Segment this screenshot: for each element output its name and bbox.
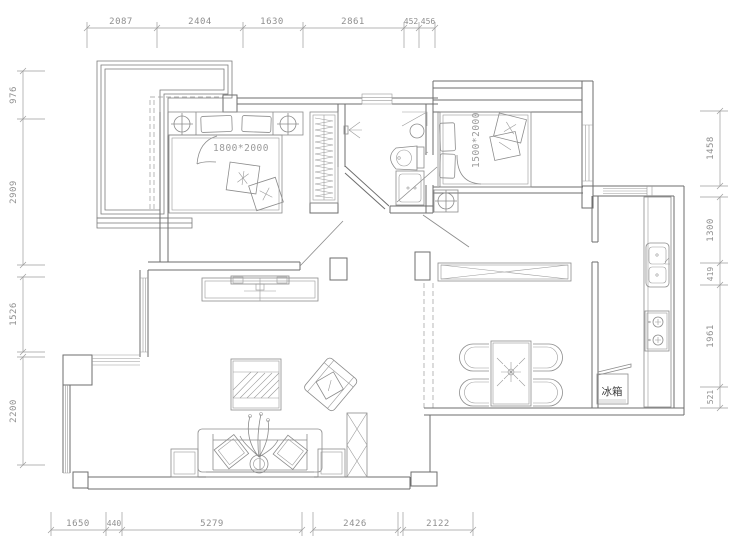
- second-bedroom-walls: [433, 81, 593, 208]
- bathroom-door-leaf: [397, 167, 437, 202]
- plant: [240, 413, 278, 474]
- headboard-band: [168, 112, 303, 135]
- tv-cabinet: [202, 278, 318, 301]
- bed-cushion: [226, 162, 260, 194]
- dimension-chain-right: 1458 1300 419 1961 521: [700, 108, 728, 411]
- dining-chair: [460, 379, 490, 406]
- dining-chair: [533, 379, 563, 406]
- dimension-chain-bottom: 1650 440 5279 2426 2122: [48, 512, 476, 536]
- living-room-walls: [63, 270, 410, 489]
- shoe-cabinet: [347, 413, 367, 477]
- dim-bottom-1: 1650: [66, 519, 90, 529]
- living-room: [171, 276, 367, 477]
- dining-room: [438, 263, 571, 406]
- dim-top-1: 2087: [109, 17, 133, 27]
- cooktop: [645, 311, 669, 351]
- master-bedroom-door-leaf: [300, 221, 343, 266]
- dining-kitchen-walls: [424, 186, 684, 415]
- dim-right-1: 1458: [706, 136, 716, 160]
- dining-chair: [460, 344, 490, 371]
- sofa: [198, 429, 322, 477]
- refrigerator: 冰箱: [597, 364, 631, 404]
- wardrobe: [310, 112, 338, 203]
- kitchen-sink: [646, 243, 670, 287]
- downlight-symbol: [277, 113, 299, 135]
- dim-left-2: 2909: [9, 180, 19, 204]
- hall-door-leaf: [423, 215, 469, 247]
- kitchen: 冰箱: [597, 197, 671, 407]
- master-bedroom-walls: [148, 94, 438, 270]
- master-bed-size-label: 1800*2000: [213, 143, 269, 154]
- dim-right-3: 419: [706, 267, 715, 282]
- table-flower: [497, 358, 525, 386]
- coffee-table: [231, 359, 281, 410]
- pillow: [440, 154, 456, 179]
- dim-bottom-5: 2122: [426, 519, 450, 529]
- dim-bottom-4: 2426: [343, 519, 367, 529]
- bathroom-sink: [396, 171, 424, 205]
- hall-walls: [330, 190, 458, 280]
- dim-top-4: 2861: [341, 17, 365, 27]
- armchair: [303, 356, 358, 412]
- bathroom-walls: [345, 104, 469, 247]
- dim-left-4: 2200: [9, 399, 19, 423]
- dim-bottom-3: 5279: [200, 519, 224, 529]
- master-bedroom: 1800*2000: [168, 112, 338, 213]
- kitchen-counter: [644, 197, 671, 407]
- dimension-chain-left: 976 2909 1526 2200: [9, 68, 45, 468]
- dim-left-1: 976: [9, 86, 19, 104]
- sideboard: [438, 263, 571, 281]
- dining-chair: [533, 344, 563, 371]
- pillow: [201, 115, 233, 132]
- wall-lamp-icon: [344, 122, 362, 138]
- second-bedroom-window: [582, 125, 593, 181]
- dim-top-2: 2404: [188, 17, 212, 27]
- dim-left-3: 1526: [9, 302, 19, 326]
- toilet: [391, 146, 429, 170]
- dim-bottom-2: 440: [107, 519, 122, 528]
- dim-right-2: 1300: [706, 218, 716, 242]
- bed-cushion: [490, 132, 520, 161]
- floor-plan-screenshot: 2087 2404 1630 2861 452 456 1650 440 527…: [0, 0, 740, 555]
- dim-top-3: 1630: [260, 17, 284, 27]
- fridge-label: 冰箱: [602, 385, 623, 398]
- downlight-symbol: [171, 113, 193, 135]
- second-bedroom: 1500*2000: [438, 112, 531, 187]
- side-table: [171, 449, 198, 477]
- dim-top-6: 456: [421, 17, 436, 26]
- dim-right-5: 521: [706, 390, 715, 405]
- bathroom-window: [362, 94, 392, 104]
- floor-plan-canvas: 2087 2404 1630 2861 452 456 1650 440 527…: [0, 0, 740, 555]
- balcony-walls: [97, 61, 232, 228]
- kitchen-window: [603, 186, 652, 196]
- pillow: [242, 116, 272, 133]
- dim-right-4: 1961: [706, 324, 716, 348]
- dining-table: [491, 341, 531, 406]
- bed-cushion: [494, 113, 527, 143]
- bathroom: [344, 112, 428, 205]
- entry-walls: [411, 415, 437, 486]
- dim-top-5: 452: [404, 17, 419, 26]
- pillow: [440, 123, 456, 152]
- dimension-chain-top: 2087 2404 1630 2861 452 456: [84, 17, 438, 48]
- second-bed-size-label: 1500*2000: [471, 112, 482, 168]
- corner-shelf: [402, 112, 427, 138]
